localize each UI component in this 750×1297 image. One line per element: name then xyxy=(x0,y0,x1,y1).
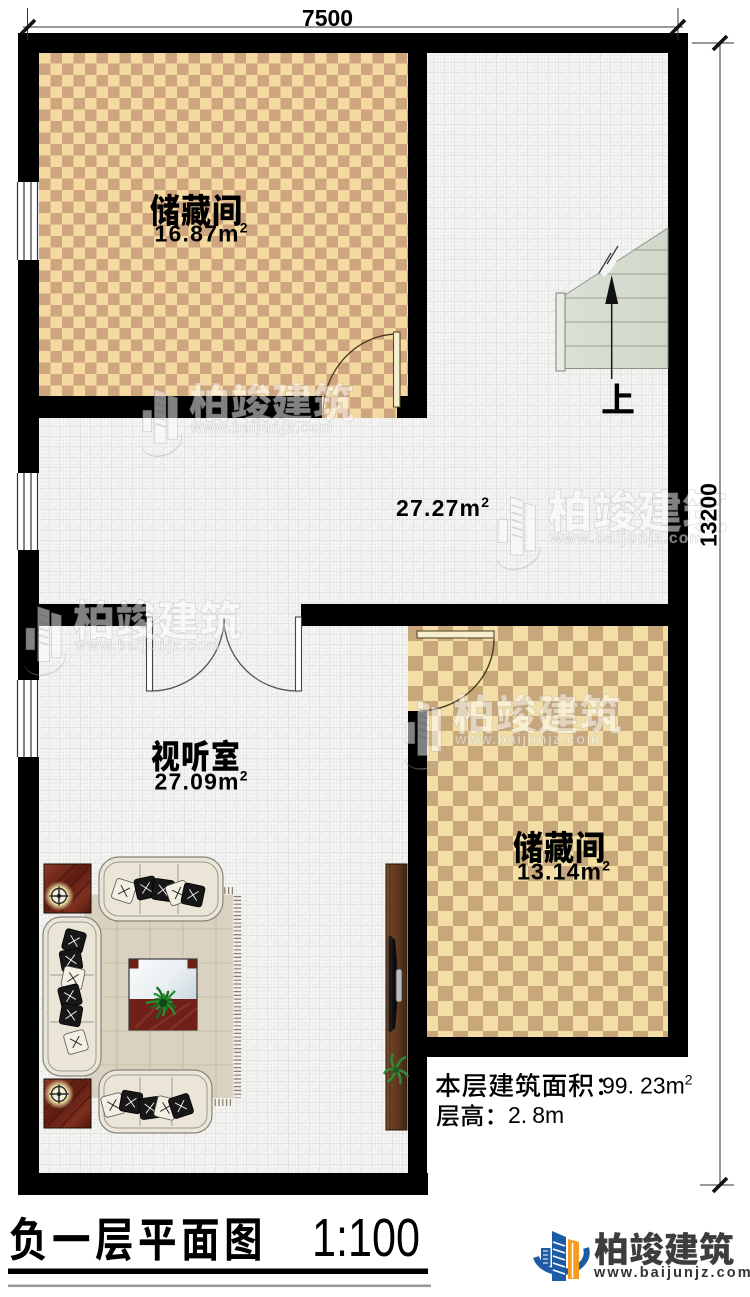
svg-text:27.09m2: 27.09m2 xyxy=(155,768,249,795)
svg-text:www.baijunjz.com: www.baijunjz.com xyxy=(593,1265,750,1281)
svg-text:27.27m2: 27.27m2 xyxy=(396,494,490,521)
svg-text:1:100: 1:100 xyxy=(312,1209,420,1269)
svg-text:13.14m2: 13.14m2 xyxy=(517,858,611,885)
svg-text:13200: 13200 xyxy=(696,483,722,547)
svg-text:7500: 7500 xyxy=(302,5,353,31)
svg-text:99.23m2: 99.23m2 xyxy=(602,1072,693,1099)
svg-text:2.8m: 2.8m xyxy=(508,1102,564,1128)
svg-text:16.87m2: 16.87m2 xyxy=(155,220,249,247)
